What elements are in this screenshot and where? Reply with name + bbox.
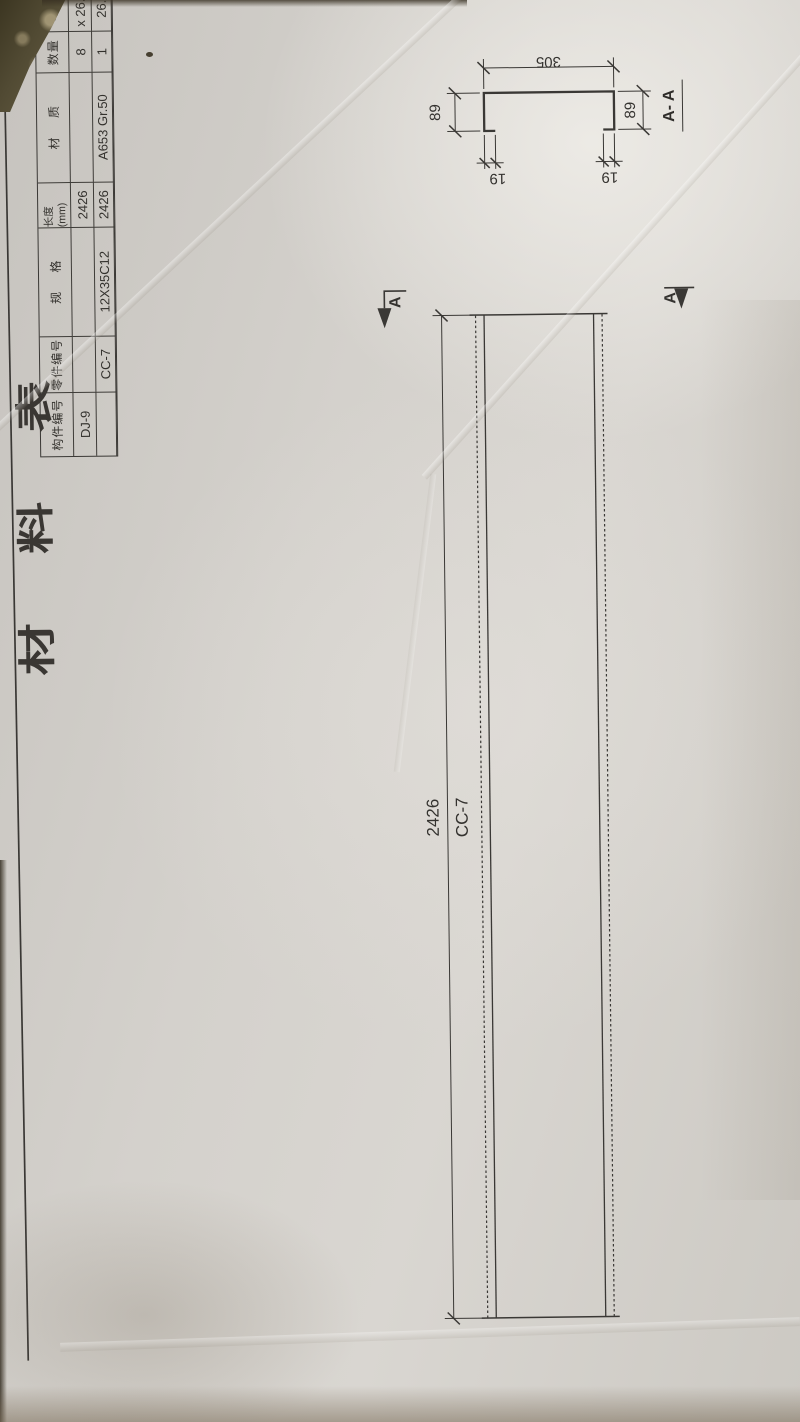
table-cell [96, 392, 117, 456]
col-header-component-no: 构件编号 [40, 392, 74, 456]
table-cell [73, 336, 97, 392]
table-cell [71, 227, 95, 336]
flange-top-dimension-label: 89 [428, 92, 443, 132]
member-right-end-line [470, 313, 608, 315]
table-cell-spec: 12X35C12 [94, 227, 115, 336]
col-header-spec: 规 格 [38, 227, 72, 336]
drawing-sheet: 材料表 构件编号 零件编号 规 格 长度(mm) 材 质 数量 单 重 DJ-9… [0, 0, 800, 1421]
table-cell-length: 2426 [94, 182, 115, 227]
col-header-length: 长度(mm) [38, 182, 72, 227]
table-cell-unit-weight: x 26.69 [68, 0, 92, 31]
length-dimension-label: 2426 [424, 758, 442, 878]
lip-top-dimension-label: 19 [476, 168, 520, 187]
flange-bottom-dimension-label: 89 [623, 90, 638, 130]
channel-profile [484, 91, 614, 131]
lip-bottom-dimension-label: 19 [588, 166, 632, 185]
table-cell [70, 72, 94, 182]
drawing-linework [0, 0, 800, 1421]
table-cell-qty: 1 [92, 31, 112, 72]
col-header-part-no: 零件编号 [40, 336, 74, 392]
table-cell-part-no: CC-7 [96, 336, 117, 392]
web-dimension-label: 305 [526, 51, 570, 70]
section-letter-top: A [388, 296, 404, 308]
section-view-label: A- A [661, 80, 684, 132]
member-label: CC-7 [453, 757, 471, 877]
section-marker-top-arrow [377, 308, 391, 328]
table-cell-qty: 8 [69, 31, 92, 72]
drawing-photo: 材料表 构件编号 零件编号 规 格 长度(mm) 材 质 数量 单 重 DJ-9… [0, 0, 800, 1422]
col-header-material: 材 质 [37, 72, 71, 182]
col-header-qty: 数量 [36, 31, 69, 72]
table-cell-unit-weight: 26.6 [91, 0, 112, 31]
member-left-end-line [482, 1316, 620, 1318]
section-letter-bottom: A [663, 292, 679, 304]
material-table: 构件编号 零件编号 规 格 长度(mm) 材 质 数量 单 重 DJ-9 242… [34, 0, 118, 457]
col-header-unit-weight: 单 重 [35, 0, 69, 31]
table-cell-length: 2426 [71, 182, 95, 227]
table-cell-material: A653 Gr.50 [93, 72, 114, 182]
table-cell-component-no: DJ-9 [73, 392, 97, 456]
